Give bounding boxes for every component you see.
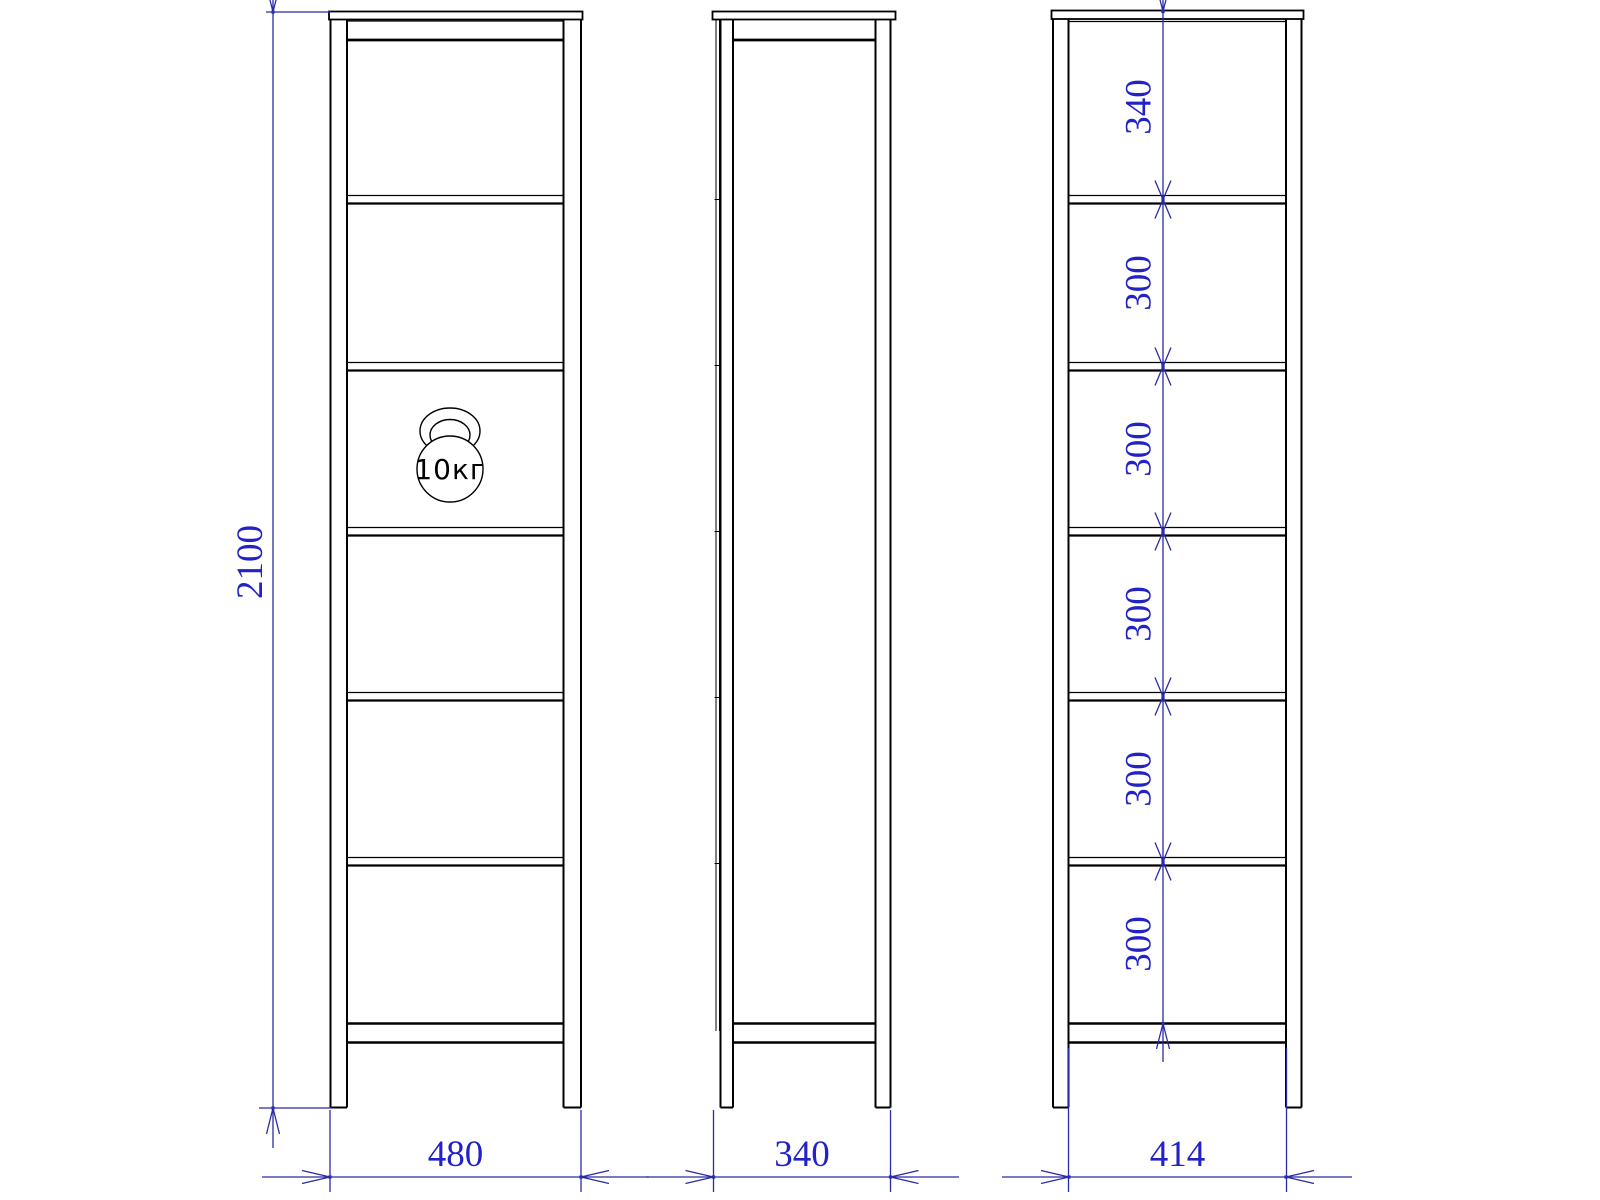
chain-tip-bottom: [1161, 1022, 1164, 1025]
shelf-unit-drawing: 10кг 2100 480 340: [0, 0, 1600, 1200]
shelf-spacing-label-1: 340: [1119, 79, 1160, 135]
front-right-leg: [564, 20, 582, 1108]
inner-width-dimension-label: 414: [1150, 1134, 1206, 1175]
shelf-spacing-view: [1052, 11, 1304, 1108]
height-dimension-label: 2100: [230, 525, 271, 599]
depth-dimension: 340: [646, 1110, 959, 1192]
spacing-top-board: [1052, 11, 1304, 20]
shelf-spacing-label-5: 300: [1119, 751, 1160, 807]
technical-drawing-canvas: 10кг 2100 480 340: [0, 0, 1600, 1200]
height-dim-tip-bottom: [271, 1106, 274, 1109]
shelf-spacing-label-2: 300: [1119, 255, 1160, 311]
spacing-left-leg: [1053, 19, 1069, 1108]
spacing-right-leg: [1286, 19, 1302, 1108]
front-width-dimension: 480: [262, 1110, 649, 1192]
front-width-tip-left: [328, 1175, 331, 1178]
kettlebell-weight-icon: 10кг: [414, 408, 485, 502]
chain-node-1: [1161, 196, 1164, 204]
height-dim-tip-top: [271, 10, 274, 13]
side-bottom-shelf: [733, 1024, 876, 1043]
shelf-spacing-chain-dimension: 340 300 300 300 300 300: [1119, 0, 1172, 1062]
front-shelf-top-lines: [347, 196, 564, 858]
chain-tip-top: [1161, 10, 1164, 13]
kettlebell-load-label: 10кг: [414, 453, 485, 486]
height-dimension: 2100: [230, 0, 332, 1148]
side-view: [713, 12, 896, 1108]
spacing-shelf-top-lines: [1069, 196, 1287, 858]
inner-width-tip-left: [1067, 1175, 1070, 1178]
chain-node-3: [1161, 528, 1164, 536]
shelf-spacing-label-4: 300: [1119, 586, 1160, 642]
chain-node-5: [1161, 858, 1164, 866]
front-width-dimension-label: 480: [428, 1134, 484, 1175]
front-view: 10кг: [329, 12, 583, 1108]
front-top-board: [329, 12, 583, 20]
shelf-spacing-label-6: 300: [1119, 916, 1160, 972]
spacing-shelf-bottom-lines: [1069, 204, 1287, 866]
front-bottom-shelf: [347, 1024, 564, 1043]
side-rear-leg: [721, 20, 734, 1108]
spacing-bottom-shelf: [1069, 1024, 1287, 1043]
side-back-panel: [716, 20, 720, 1032]
inner-width-dimension: 414: [1002, 1048, 1352, 1192]
chain-node-2: [1161, 363, 1164, 371]
depth-dimension-label: 340: [774, 1134, 830, 1175]
side-front-leg: [876, 20, 891, 1108]
shelf-spacing-label-3: 300: [1119, 421, 1160, 477]
inner-width-tip-right: [1284, 1175, 1287, 1178]
side-top-board: [713, 12, 896, 20]
chain-node-4: [1161, 693, 1164, 701]
depth-tip-left: [712, 1175, 715, 1178]
depth-tip-right: [889, 1175, 892, 1178]
front-left-leg: [331, 20, 348, 1108]
front-width-tip-right: [579, 1175, 582, 1178]
front-shelf-bottom-lines: [347, 204, 564, 866]
